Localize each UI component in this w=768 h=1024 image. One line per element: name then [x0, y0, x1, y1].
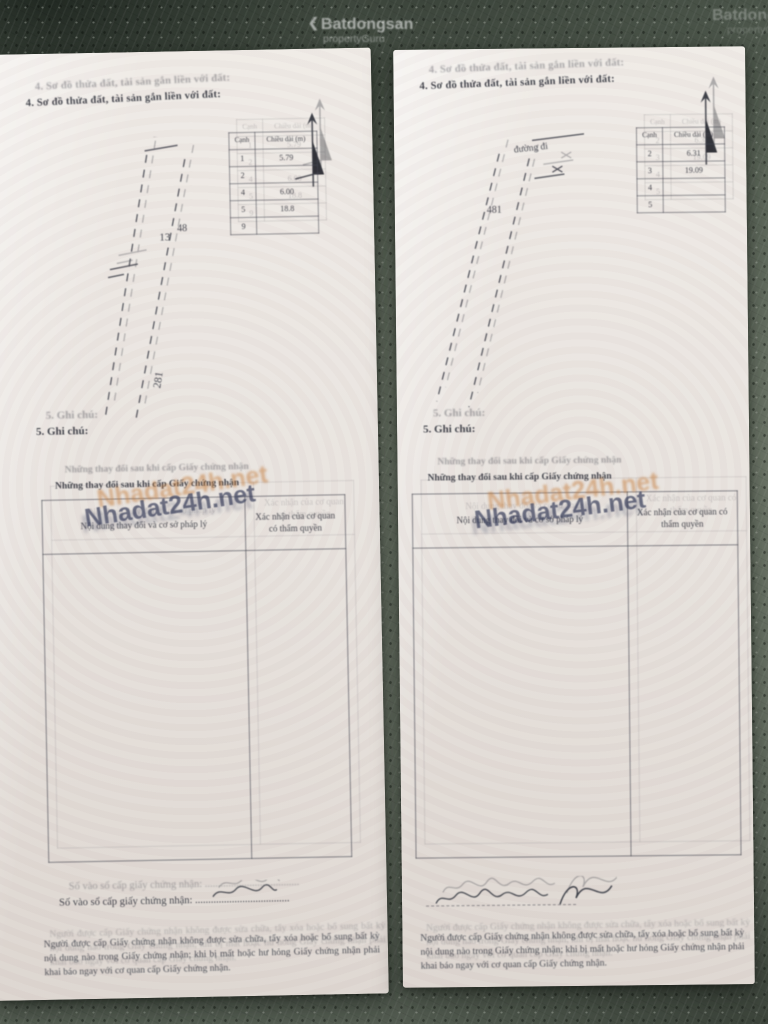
changes-empty-cell: [43, 551, 252, 863]
table-row: 2 6.31: [637, 144, 725, 162]
road-label: đường đi: [513, 142, 548, 156]
street-number-label: 281: [151, 371, 165, 389]
edge-len: [663, 178, 725, 196]
changes-table: Nội dung thay đổi và cơ sở pháp lý Xác n…: [412, 490, 742, 858]
changes-empty-cell: [627, 545, 741, 856]
land-certificate-photo: 4. Sơ đồ thửa đất, tài sản gắn liền với …: [0, 0, 768, 1024]
changes-col-confirm: Xác nhận của cơ quan có thẩm quyền: [245, 495, 346, 551]
brand-name: Batdongsan: [712, 7, 768, 24]
edge-len: 6.31: [663, 144, 725, 162]
edge-len: 19.09: [663, 161, 725, 179]
edge-length-table: Cạnh Chiều dài (m) 2 6.31 3 19.09 4 5: [636, 126, 726, 213]
parcel-diagram: 13 48 281: [95, 133, 331, 477]
section5-heading: 5. Ghi chú:: [423, 423, 475, 436]
changes-table: Nội dung thay đổi và cơ sở pháp lý Xác n…: [41, 494, 352, 863]
certificate-note: Người được cấp Giấy chứng nhận không đượ…: [420, 927, 745, 974]
brand-name: Batdongsan: [321, 16, 413, 33]
batdongsan-watermark-corner: Batdongsan propertyGuru: [712, 8, 768, 36]
parcel-diagram: 481 đường đi: [414, 127, 648, 469]
batdongsan-watermark: ❮Batdongsan propertyGuru: [308, 16, 413, 45]
certificate-note: Người được cấp Giấy chứng nhận không đượ…: [44, 930, 381, 980]
handwritten-entry: [210, 879, 280, 904]
chevron-left-icon: ❮: [308, 15, 319, 30]
section4-heading: 4. Sơ đồ thửa đất, tài sản gắn liền với …: [419, 71, 679, 92]
handwritten-entry: [432, 876, 617, 918]
brand-subtitle: propertyGuru: [727, 25, 768, 36]
length-col-header: Chiều dài (m): [662, 127, 724, 145]
changes-empty-cell: [246, 549, 352, 859]
table-row: 5: [637, 195, 725, 213]
changes-empty-cell: [413, 546, 631, 858]
edge-len: [663, 195, 725, 213]
section4-heading: 4. Sơ đồ thửa đất, tài sản gắn liền với …: [26, 85, 316, 110]
certificate-page-left: 4. Sơ đồ thửa đất, tài sản gắn liền với …: [0, 48, 389, 1001]
brand-subtitle: propertyGuru: [323, 34, 413, 45]
page-left-content: 4. Sơ đồ thửa đất, tài sản gắn liền với …: [0, 48, 389, 1001]
table-row: [43, 549, 352, 863]
table-row: 3 19.09: [637, 161, 725, 179]
section5-heading: 5. Ghi chú:: [36, 425, 88, 438]
book-entry-label: Số vào sổ cấp giấy chứng nhận:: [59, 895, 193, 909]
table-row: [413, 545, 741, 858]
parcel-number-label: 13: [159, 231, 171, 243]
changes-table-title: Những thay đổi sau khi cấp Giấy chứng nh…: [428, 472, 612, 484]
table-row: 4: [637, 178, 725, 196]
